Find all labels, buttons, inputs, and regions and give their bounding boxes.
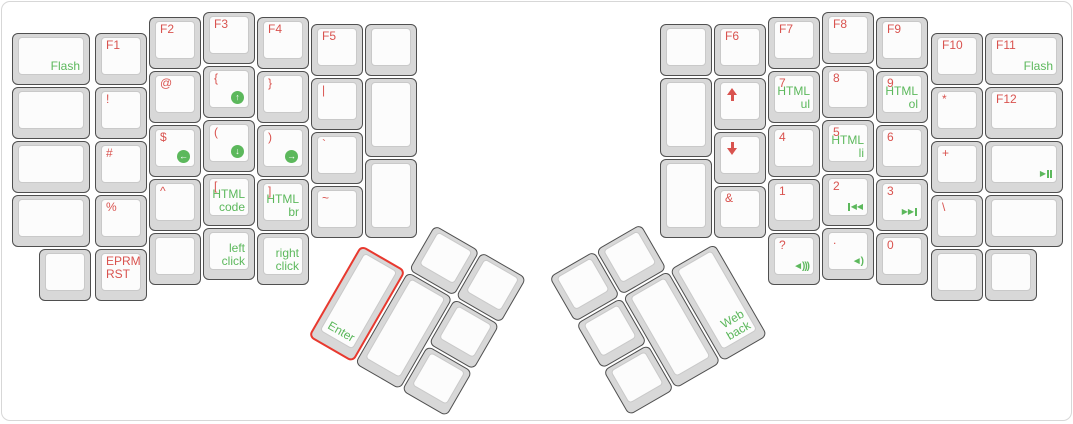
keyboard-canvas: Enter Web back FlashF1!#%EPRM RSTF2@$←^F… [1, 1, 1072, 421]
key-label: ~ [322, 192, 329, 205]
key-label: HTML li [831, 134, 864, 160]
keycap-face: } [263, 75, 303, 113]
volume-up-icon: ◄))) [793, 262, 809, 272]
key-label: 1 [779, 185, 786, 198]
keycap-face: F12 [991, 91, 1057, 129]
key-label: ! [106, 93, 109, 106]
key-label: HTML code [212, 188, 245, 214]
key-blank[interactable] [985, 249, 1037, 301]
keycap-face: 7HTML ul [774, 75, 814, 113]
key-right-click[interactable]: right click [257, 233, 309, 285]
key-blank[interactable] [660, 159, 712, 238]
keycap-face: F10 [937, 37, 977, 75]
key-blank[interactable] [39, 249, 91, 301]
arrow-down-circle-icon: ↓ [231, 145, 244, 158]
keycap-face: right click [263, 237, 303, 275]
keycap-face [556, 257, 610, 310]
key-label: Enter [325, 319, 356, 345]
keycap-face [45, 253, 85, 291]
keycap-face: Flash [18, 37, 84, 75]
keycap-face [371, 82, 411, 147]
key-label: F10 [942, 39, 963, 52]
key-label: HTML ol [885, 85, 918, 111]
key-close-paren[interactable]: )→ [257, 125, 309, 177]
keycap-face: F6 [720, 28, 760, 66]
keycap-face: .◄) [828, 232, 868, 270]
key-6[interactable]: 6 [876, 125, 928, 177]
key-left-click[interactable]: left click [203, 228, 255, 280]
play-pause-icon: ▶ [1040, 170, 1052, 178]
key-arrow-down[interactable] [714, 132, 766, 184]
key-f9[interactable]: F9 [876, 17, 928, 69]
key-label: ^ [160, 185, 166, 198]
keycap-face: & [720, 190, 760, 228]
key-hash[interactable]: # [95, 141, 147, 193]
key-percent[interactable]: % [95, 195, 147, 247]
keycap-face [603, 230, 657, 283]
keycap-face: 4 [774, 129, 814, 167]
key-period[interactable]: .◄) [822, 228, 874, 280]
key-ampersand[interactable]: & [714, 186, 766, 238]
key-label: ` [322, 138, 326, 151]
key-f7[interactable]: F7 [768, 17, 820, 69]
key-label: 0 [887, 239, 894, 252]
keycap-face: F2 [155, 21, 195, 59]
keycap-face [466, 258, 520, 311]
keycap-face: ]HTML br [263, 183, 303, 221]
key-asterisk[interactable]: * [931, 87, 983, 139]
key-blank[interactable] [365, 24, 417, 76]
keycap-face [666, 163, 706, 228]
key-backslash[interactable]: \ [931, 195, 983, 247]
keycap-face [666, 82, 706, 147]
up-arrow-icon [727, 88, 737, 101]
keycap-face: left click [209, 232, 249, 270]
key-label: EPRM RST [106, 255, 141, 281]
key-open-bracket[interactable]: [HTML code [203, 174, 255, 226]
keycap-face: 0 [882, 237, 922, 275]
key-label: 6 [887, 131, 894, 144]
keycap-face [666, 28, 706, 66]
key-blank[interactable] [12, 87, 90, 139]
keycap-face: F11Flash [991, 37, 1057, 75]
keycap-face: [HTML code [209, 178, 249, 216]
key-close-brace[interactable]: } [257, 71, 309, 123]
keycap-face [937, 253, 977, 291]
keycap-face: 8 [828, 70, 868, 108]
keycap-face [419, 231, 473, 284]
keycap-face [155, 237, 195, 275]
keycap-face: % [101, 199, 141, 237]
keycap-face: ~ [317, 190, 357, 228]
keycap-face: F7 [774, 21, 814, 59]
keycap-face [720, 136, 760, 174]
key-label: F6 [725, 30, 739, 43]
key-dollar[interactable]: $← [149, 125, 201, 177]
key-blank[interactable] [985, 195, 1063, 247]
key-f1[interactable]: F1 [95, 33, 147, 85]
key-2[interactable]: 2◀◀ [822, 174, 874, 226]
key-f6[interactable]: F6 [714, 24, 766, 76]
key-blank[interactable] [660, 24, 712, 76]
key-label: right click [276, 247, 299, 273]
key-blank[interactable] [12, 195, 90, 247]
arrow-up-circle-icon: ↑ [231, 91, 244, 104]
key-eprm-rst[interactable]: EPRM RST [95, 249, 147, 301]
key-f2[interactable]: F2 [149, 17, 201, 69]
key-label: F2 [160, 23, 174, 36]
key-label: % [106, 201, 117, 214]
key-label: left click [222, 242, 245, 268]
key-label: F4 [268, 23, 282, 36]
key-label: ) [268, 131, 272, 144]
key-arrow-up[interactable] [714, 78, 766, 130]
keycap-face: F9 [882, 21, 922, 59]
key-f4[interactable]: F4 [257, 17, 309, 69]
keycap-face [991, 199, 1057, 237]
keycap-face: * [937, 91, 977, 129]
key-caret[interactable]: ^ [149, 179, 201, 231]
key-label: F11 [996, 39, 1016, 52]
keycap-face: {↑ [209, 70, 249, 108]
key-f3[interactable]: F3 [203, 12, 255, 64]
keycap-face [371, 28, 411, 66]
keycap-face: 2◀◀ [828, 178, 868, 216]
key-f11[interactable]: F11Flash [985, 33, 1063, 85]
key-blank[interactable] [931, 249, 983, 301]
key-0[interactable]: 0 [876, 233, 928, 285]
key-f10[interactable]: F10 [931, 33, 983, 85]
down-arrow-icon [727, 142, 737, 155]
key-4[interactable]: 4 [768, 125, 820, 177]
key-label: HTML br [266, 193, 299, 219]
key-label: Flash [1024, 60, 1053, 73]
key-label: } [268, 77, 272, 90]
keycap-face: ` [317, 136, 357, 174]
keycap-face: + [937, 145, 977, 183]
keycap-face: F5 [317, 28, 357, 66]
key-label: 4 [779, 131, 786, 144]
key-9[interactable]: 9HTML ol [876, 71, 928, 123]
key-label: F7 [779, 23, 793, 36]
key-blank[interactable] [149, 233, 201, 285]
keycap-face [18, 91, 84, 129]
keycap-face: ▶ [991, 145, 1057, 183]
key-flash[interactable]: Flash [12, 33, 90, 85]
key-backtick[interactable]: ` [311, 132, 363, 184]
keycap-face [18, 145, 84, 183]
keycap-face: ?◄))) [774, 237, 814, 275]
keycap-face: 5HTML li [828, 124, 868, 162]
keycap-face: F8 [828, 16, 868, 54]
keycap-face [720, 82, 760, 120]
key-label: | [322, 84, 325, 97]
key-blank[interactable] [365, 78, 417, 157]
keycap-face: \ [937, 199, 977, 237]
key-blank[interactable] [12, 141, 90, 193]
arrow-left-circle-icon: ← [177, 150, 190, 163]
keycap-face: 1 [774, 183, 814, 221]
key-label: 3 [887, 185, 894, 198]
key-at[interactable]: @ [149, 71, 201, 123]
keycap-face: ! [101, 91, 141, 129]
key-label: \ [942, 201, 945, 214]
keycap-face: @ [155, 75, 195, 113]
key-label: 2 [833, 180, 840, 193]
key-f5[interactable]: F5 [311, 24, 363, 76]
keycap-face [18, 199, 84, 237]
key-label: F1 [106, 39, 120, 52]
key-open-brace[interactable]: {↑ [203, 66, 255, 118]
key-label: * [942, 93, 947, 106]
key-label: HTML ul [777, 85, 810, 111]
key-label: F12 [996, 93, 1017, 106]
keycap-face [371, 163, 411, 228]
key-3[interactable]: 3▶▶ [876, 179, 928, 231]
keycap-face: F1 [101, 37, 141, 75]
key-label: ( [214, 126, 218, 139]
key-8[interactable]: 8 [822, 66, 874, 118]
keycap-face: )→ [263, 129, 303, 167]
key-label: Web back [718, 308, 753, 343]
key-label: Flash [51, 60, 80, 73]
key-plus[interactable]: + [931, 141, 983, 193]
key-label: { [214, 72, 218, 85]
key-f12[interactable]: F12 [985, 87, 1063, 139]
key-f8[interactable]: F8 [822, 12, 874, 64]
key-pipe[interactable]: | [311, 78, 363, 130]
keycap-face: (↓ [209, 124, 249, 162]
volume-down-icon: ◄) [852, 257, 863, 267]
previous-track-icon: ◀◀ [848, 203, 863, 211]
keycap-face: F3 [209, 16, 249, 54]
key-label: F5 [322, 30, 336, 43]
key-label: # [106, 147, 113, 160]
key-open-paren[interactable]: (↓ [203, 120, 255, 172]
key-label: F3 [214, 18, 228, 31]
keycap-face: 6 [882, 129, 922, 167]
key-play-pause[interactable]: ▶ [985, 141, 1063, 193]
key-7[interactable]: 7HTML ul [768, 71, 820, 123]
keycap-face: F4 [263, 21, 303, 59]
keycap-face [991, 253, 1031, 291]
keycap-face: $← [155, 129, 195, 167]
keycap-face: 9HTML ol [882, 75, 922, 113]
key-label: 8 [833, 72, 840, 85]
key-label: F8 [833, 18, 847, 31]
next-track-icon: ▶▶ [902, 208, 917, 216]
key-question[interactable]: ?◄))) [768, 233, 820, 285]
key-1[interactable]: 1 [768, 179, 820, 231]
keycap-face: ^ [155, 183, 195, 221]
keycap-face: 3▶▶ [882, 183, 922, 221]
key-label: F9 [887, 23, 901, 36]
arrow-right-circle-icon: → [285, 150, 298, 163]
key-blank[interactable] [365, 159, 417, 238]
keycap-face: | [317, 82, 357, 120]
key-label: $ [160, 131, 167, 144]
key-label: ? [779, 239, 786, 252]
key-5[interactable]: 5HTML li [822, 120, 874, 172]
keycap-face: EPRM RST [101, 253, 141, 291]
key-label: + [942, 147, 949, 160]
keycap-face: # [101, 145, 141, 183]
key-blank[interactable] [660, 78, 712, 157]
key-label: . [833, 234, 836, 247]
key-label: @ [160, 77, 172, 90]
key-tilde[interactable]: ~ [311, 186, 363, 238]
key-exclamation[interactable]: ! [95, 87, 147, 139]
key-close-bracket[interactable]: ]HTML br [257, 179, 309, 231]
key-label: & [725, 192, 733, 205]
